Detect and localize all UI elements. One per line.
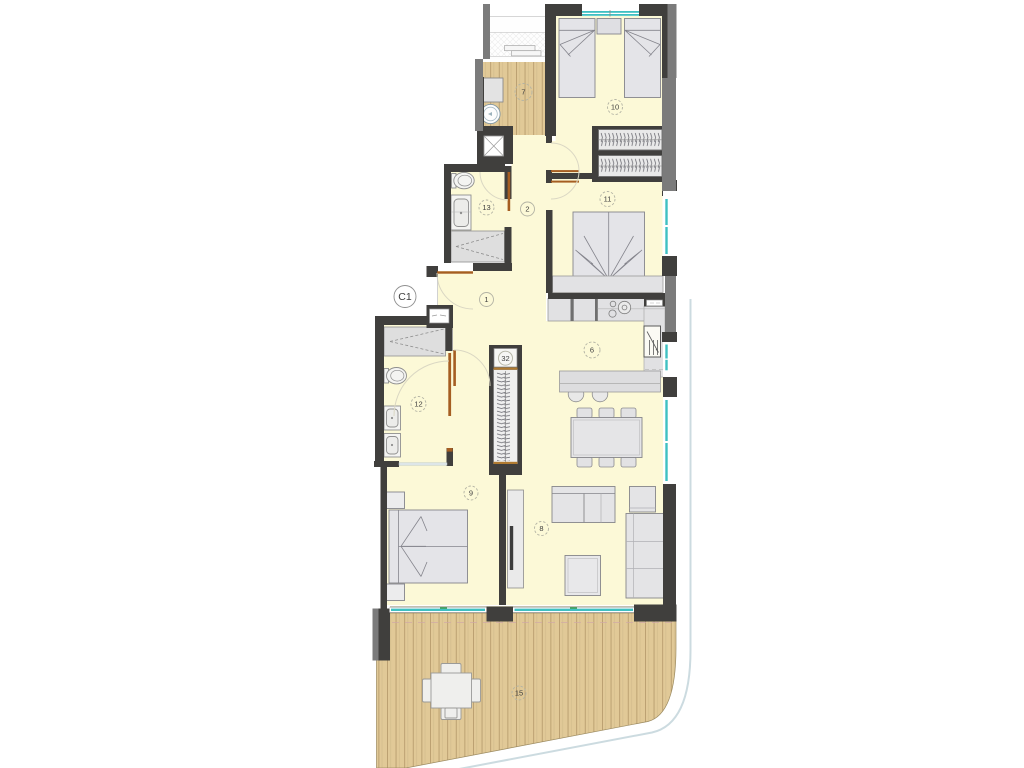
svg-text:1: 1 bbox=[484, 295, 488, 304]
svg-text:32: 32 bbox=[501, 354, 509, 363]
svg-text:C1: C1 bbox=[398, 291, 412, 303]
svg-text:15: 15 bbox=[515, 689, 523, 698]
svg-text:10: 10 bbox=[611, 103, 619, 112]
svg-text:13: 13 bbox=[482, 203, 490, 212]
svg-text:2: 2 bbox=[525, 205, 529, 214]
svg-text:6: 6 bbox=[590, 346, 594, 355]
svg-text:9: 9 bbox=[469, 489, 473, 498]
svg-text:12: 12 bbox=[414, 400, 422, 409]
svg-text:11: 11 bbox=[604, 195, 612, 204]
svg-text:8: 8 bbox=[539, 524, 543, 533]
svg-text:7: 7 bbox=[521, 88, 525, 97]
